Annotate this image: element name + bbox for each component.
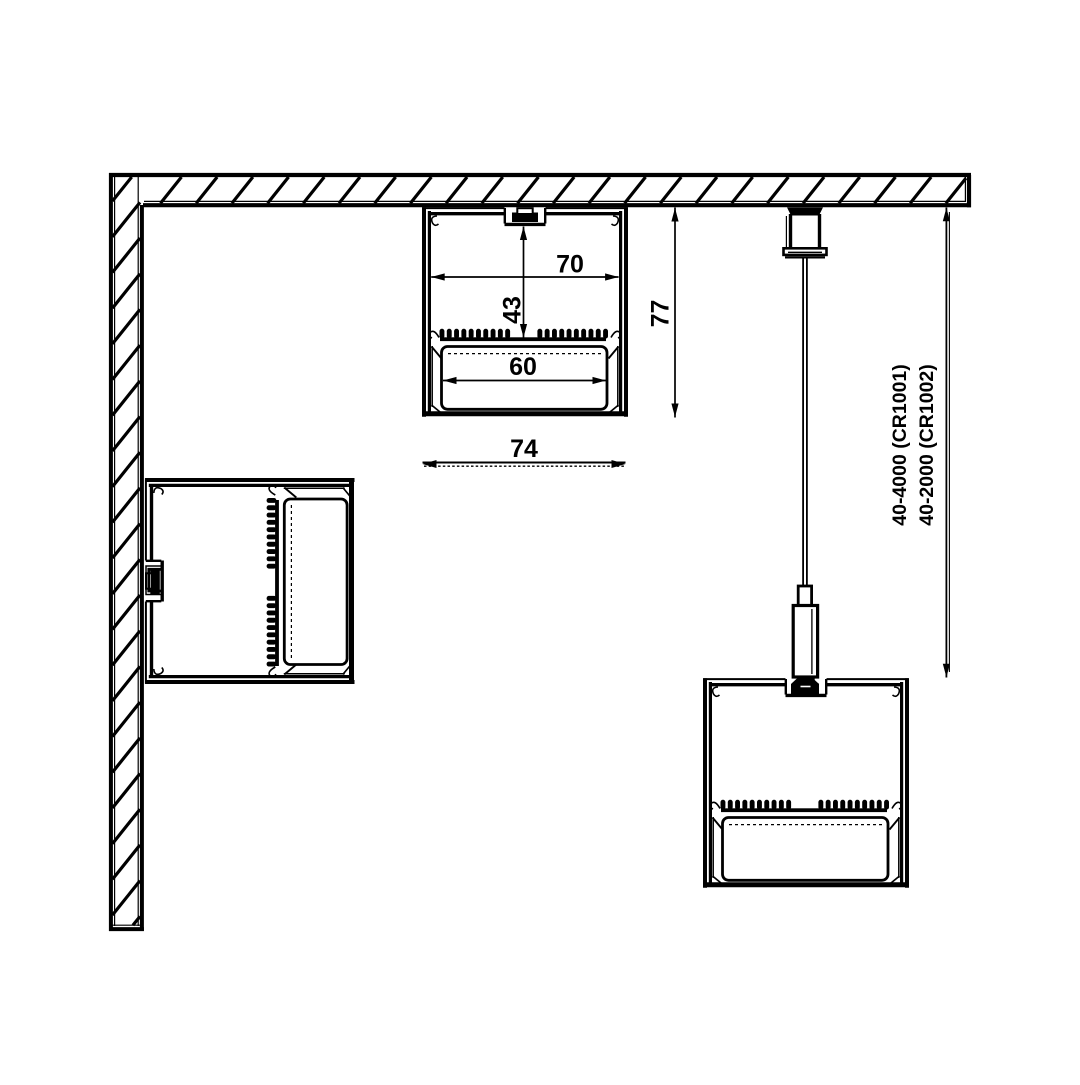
svg-text:60: 60 <box>509 353 537 381</box>
svg-text:43: 43 <box>499 296 527 324</box>
svg-text:74: 74 <box>510 435 538 463</box>
svg-text:70: 70 <box>556 251 584 279</box>
svg-text:40-4000 (CR1001): 40-4000 (CR1001) <box>889 364 911 526</box>
svg-text:40-2000 (CR1002): 40-2000 (CR1002) <box>916 364 938 526</box>
svg-text:77: 77 <box>647 300 675 328</box>
